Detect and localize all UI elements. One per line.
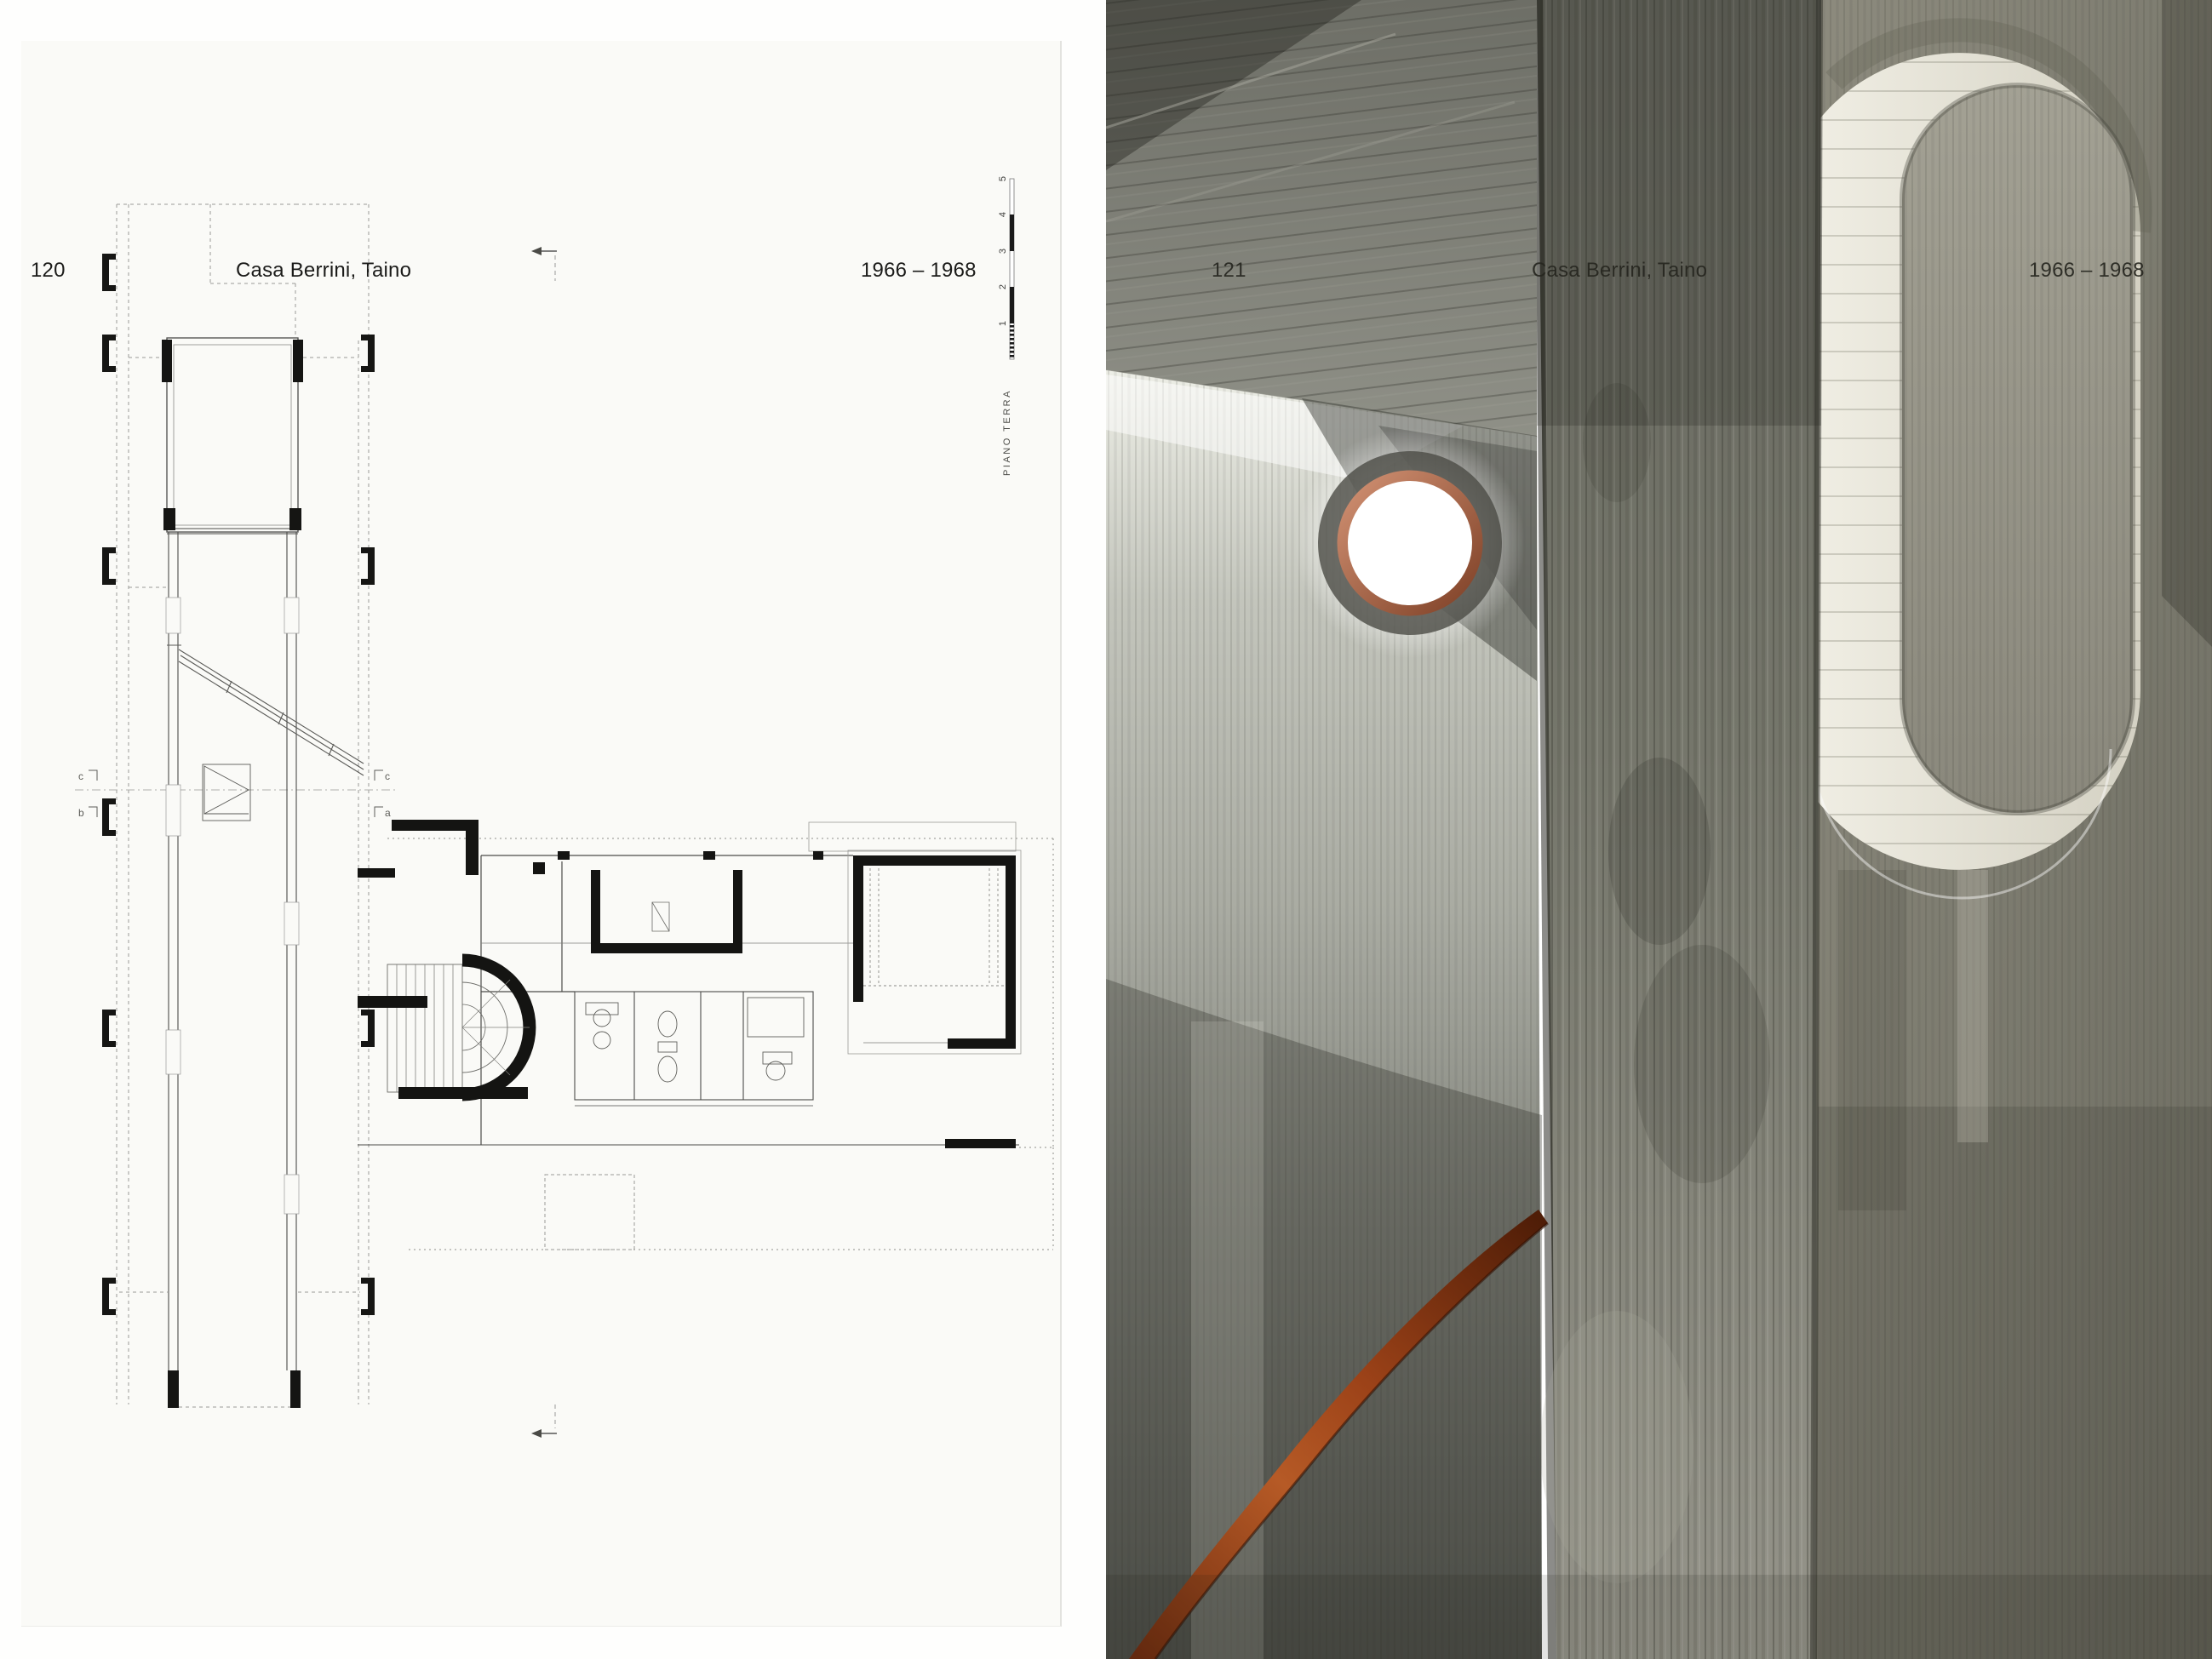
porthole-window bbox=[1295, 428, 1525, 658]
photo-vignette bbox=[1106, 1575, 2212, 1659]
plan-glyph-box bbox=[203, 764, 250, 821]
right-page-number: 121 bbox=[1212, 260, 1246, 281]
plan-fireplace bbox=[652, 902, 669, 931]
porthole-glass bbox=[1348, 481, 1472, 605]
right-page-title: Casa Berrini, Taino bbox=[1532, 260, 1707, 281]
plan-brackets-left bbox=[102, 254, 116, 1315]
plan-section-marker-bottom bbox=[531, 1404, 557, 1438]
right-page: 121 Casa Berrini, Taino 1966 – 1968 bbox=[1106, 0, 2212, 1659]
left-page: 120 Casa Berrini, Taino 1966 – 1968 5 4 … bbox=[0, 0, 1106, 1659]
photo-concrete-stairwell bbox=[1106, 0, 2212, 1659]
svg-text:c: c bbox=[78, 770, 83, 782]
photo-pillar bbox=[1537, 0, 1821, 1659]
plan-dashed-square bbox=[545, 1175, 634, 1250]
plan-stub bbox=[290, 1370, 301, 1408]
floor-plan-svg: c b c a bbox=[0, 0, 1106, 1659]
plan-overhang-dashed bbox=[117, 204, 369, 1407]
photo-ceiling-slab bbox=[1106, 0, 1537, 438]
plan-square-room bbox=[848, 850, 1021, 1148]
plan-strip-walls bbox=[169, 532, 296, 1370]
svg-text:c: c bbox=[385, 770, 390, 782]
plan-section-letters: c b c a bbox=[78, 770, 391, 819]
plan-section-marker-top bbox=[531, 247, 557, 281]
right-page-dates: 1966 – 1968 bbox=[2029, 260, 2145, 281]
plan-top-room bbox=[162, 338, 303, 534]
plan-kitchen-bath bbox=[575, 992, 813, 1106]
oval-opening bbox=[1779, 30, 2140, 898]
plan-brackets-right bbox=[361, 335, 375, 1315]
svg-text:a: a bbox=[385, 807, 391, 819]
plan-stub bbox=[168, 1370, 179, 1408]
plan-wing-walls bbox=[358, 855, 1019, 1145]
floor-plan: c b c a bbox=[0, 0, 1106, 1659]
svg-text:b: b bbox=[78, 807, 84, 819]
book-spread: 120 Casa Berrini, Taino 1966 – 1968 5 4 … bbox=[0, 0, 2212, 1659]
plan-strip-windows bbox=[166, 598, 299, 1214]
scale-bar bbox=[1010, 179, 1014, 359]
plan-stair bbox=[358, 960, 530, 1099]
plan-thick-walls bbox=[358, 820, 823, 953]
plan-ramp bbox=[167, 645, 364, 775]
plan-wing-canopy bbox=[809, 822, 1016, 851]
